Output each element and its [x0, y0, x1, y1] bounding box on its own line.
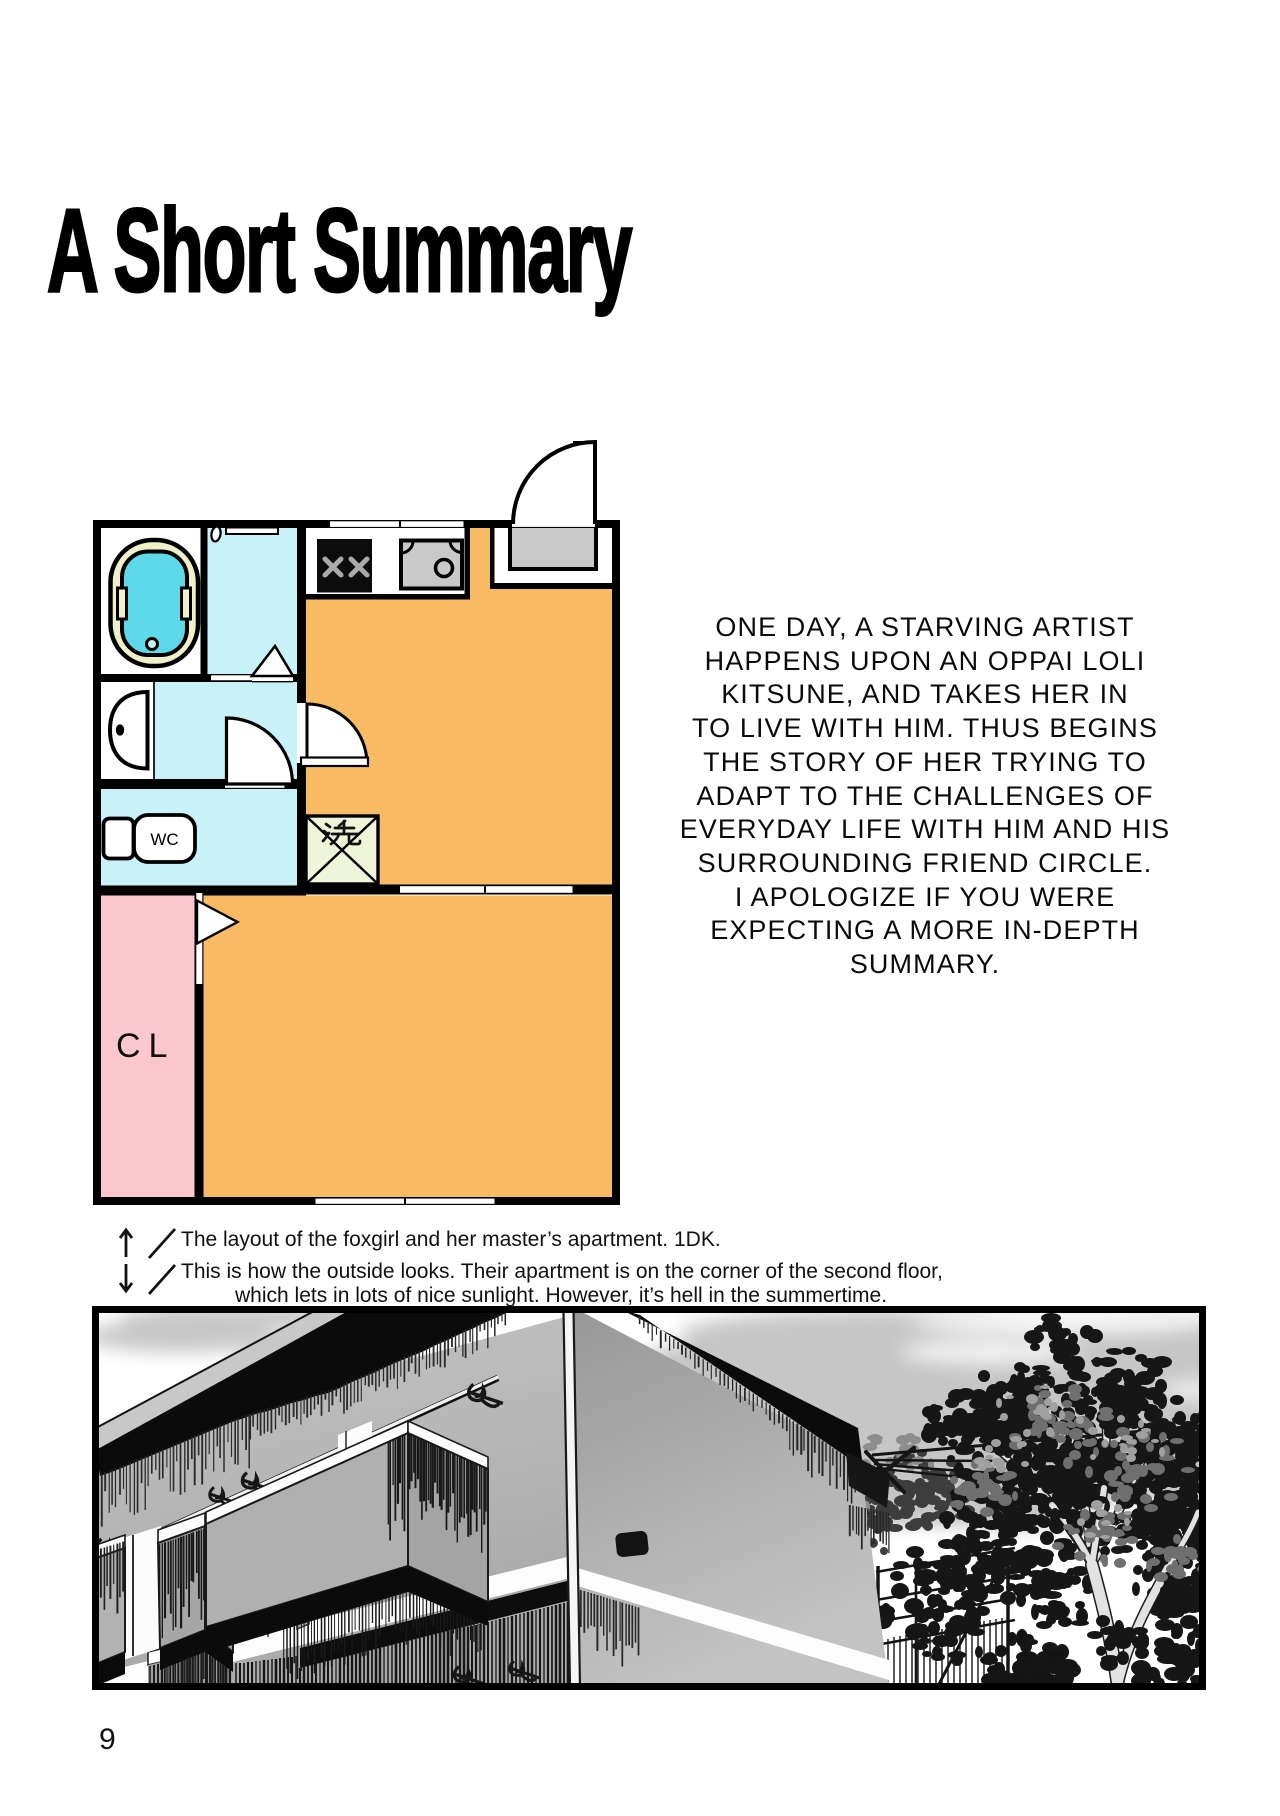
- svg-text:WC: WC: [150, 830, 178, 849]
- svg-text:CL: CL: [116, 1027, 175, 1065]
